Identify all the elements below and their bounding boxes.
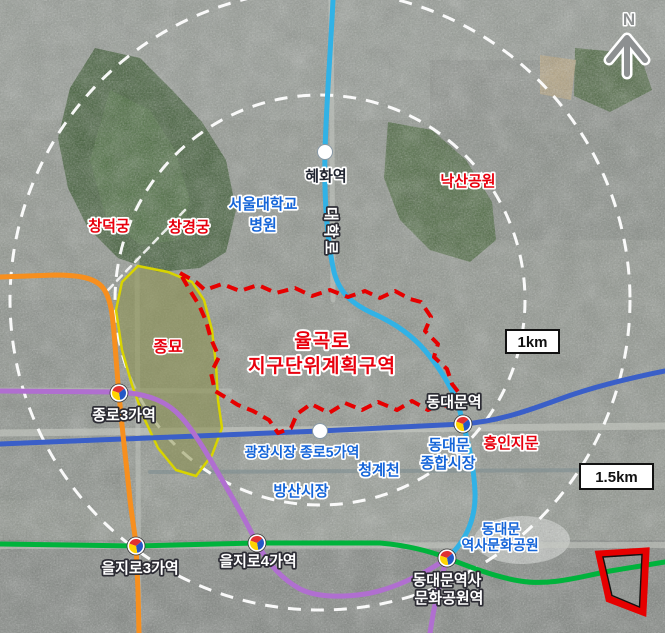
scale-label-1km: 1km bbox=[517, 334, 547, 351]
north-label: N bbox=[623, 10, 635, 29]
station-dot-ddp bbox=[438, 549, 456, 567]
label-snu-hospital-1: 서울대학교 bbox=[228, 196, 297, 213]
label-ddp-park-2: 역사문화공원 bbox=[461, 537, 538, 553]
label-ddp-park-1: 동대문 bbox=[482, 521, 521, 537]
label-ddp-station-1: 동대문역사 bbox=[412, 572, 481, 589]
station-dot-jongno5ga bbox=[313, 424, 328, 439]
station-dot-dongdaemun bbox=[454, 415, 472, 433]
label-bangsan-market: 방산시장 bbox=[273, 482, 328, 500]
label-plan-area-2: 지구단위계획구역 bbox=[248, 355, 396, 377]
label-hyehwa-station: 혜화역 bbox=[305, 168, 346, 185]
label-dongdaemun-market-1: 동대문 bbox=[428, 437, 470, 454]
station-dot-jongno3ga bbox=[110, 384, 128, 402]
label-changgyeonggung: 창경궁 bbox=[168, 218, 210, 236]
label-dongdaemun-station: 동대문역 bbox=[426, 394, 481, 411]
label-gwangjang-jongno5ga: 광장시장 종로5가역 bbox=[245, 444, 360, 460]
station-dot-euljiro3ga bbox=[127, 537, 145, 555]
label-ddp-station-2: 문화공원역 bbox=[414, 590, 483, 607]
label-daehangno-road: 대학로 bbox=[322, 207, 339, 257]
label-euljiro3ga-station: 을지로3가역 bbox=[101, 560, 178, 577]
label-jongmyo: 종묘 bbox=[153, 338, 183, 356]
station-dot-euljiro4ga bbox=[248, 534, 266, 552]
station-dot-hyehwa bbox=[318, 145, 333, 160]
scale-label-1-5km: 1.5km bbox=[595, 469, 638, 486]
map-canvas: N 1km 1.5km 혜화역 서울대학교 병원 대학로 낙산공원 창덕궁 창경… bbox=[0, 0, 665, 633]
label-naksan-park: 낙산공원 bbox=[440, 173, 495, 190]
label-snu-hospital-2: 병원 bbox=[249, 217, 277, 234]
seoul-satellite-map: N 1km 1.5km 혜화역 서울대학교 병원 대학로 낙산공원 창덕궁 창경… bbox=[0, 0, 665, 633]
label-cheonggyecheon: 청계천 bbox=[358, 461, 399, 479]
label-euljiro4ga-station: 을지로4가역 bbox=[219, 553, 296, 570]
label-dongdaemun-market-2: 종합시장 bbox=[420, 454, 475, 472]
label-heunginjimun: 흥인지문 bbox=[483, 434, 538, 452]
label-changdeokgung: 창덕궁 bbox=[88, 217, 130, 235]
label-jongno3ga-station: 종로3가역 bbox=[92, 407, 156, 424]
label-plan-area-1: 율곡로 bbox=[294, 330, 349, 352]
